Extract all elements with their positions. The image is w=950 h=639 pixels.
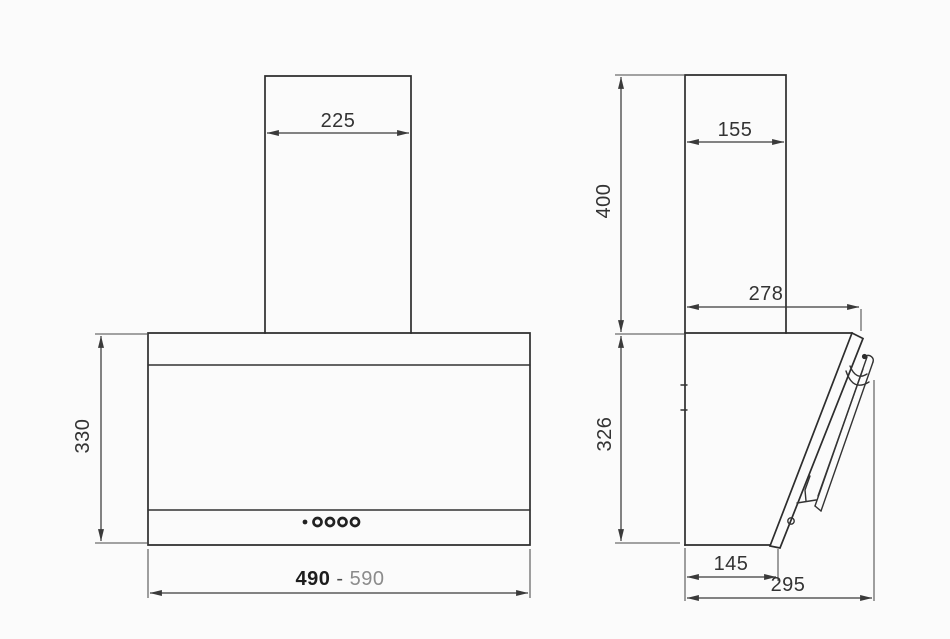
dim-label-295: 295: [771, 574, 806, 596]
dim-side-chimney-height: 400: [593, 75, 685, 334]
control-button: [326, 518, 334, 526]
mounting-marks: [681, 385, 687, 410]
control-button: [339, 518, 347, 526]
dim-side-bottom-depth: 145: [685, 548, 778, 601]
dim-front-chimney-width: 225: [267, 110, 409, 133]
dim-label-width-max: 590: [350, 568, 385, 590]
dim-label-width-separator: -: [330, 568, 349, 590]
side-chimney-outline: [685, 75, 786, 545]
dim-label-145: 145: [714, 553, 749, 575]
slanted-front-panel: [770, 333, 863, 548]
dim-side-top-depth: 278: [687, 283, 861, 331]
dim-label-490-590: 490 - 590: [295, 568, 384, 590]
dim-label-width-min: 490: [295, 568, 330, 590]
indicator-dot: [303, 520, 308, 525]
dim-label-400: 400: [593, 184, 615, 219]
dim-side-chimney-depth: 155: [687, 119, 784, 142]
cooker-hood-dimension-diagram: 225 330 490 - 590: [0, 0, 950, 639]
technical-drawing-canvas: 225 330 490 - 590: [0, 0, 950, 639]
dim-label-326: 326: [594, 417, 616, 452]
control-button: [314, 518, 322, 526]
dim-label-278: 278: [749, 283, 784, 305]
control-buttons: [303, 518, 359, 526]
door-glass-line: [818, 369, 863, 496]
door-hinge-knob: [862, 354, 867, 359]
dim-front-body-height: 330: [72, 334, 148, 543]
control-button: [351, 518, 359, 526]
door-swing-arc-inner: [850, 366, 867, 376]
dim-label-155: 155: [718, 119, 753, 141]
dim-label-225: 225: [321, 110, 356, 132]
dim-side-body-height: 326: [594, 336, 680, 543]
door-bottom-cap: [815, 506, 821, 511]
dim-front-body-width: 490 - 590: [148, 549, 530, 598]
dim-label-330: 330: [72, 419, 94, 454]
front-view: 225 330 490 - 590: [72, 76, 530, 598]
side-view: 155 400 326 278: [593, 75, 874, 601]
